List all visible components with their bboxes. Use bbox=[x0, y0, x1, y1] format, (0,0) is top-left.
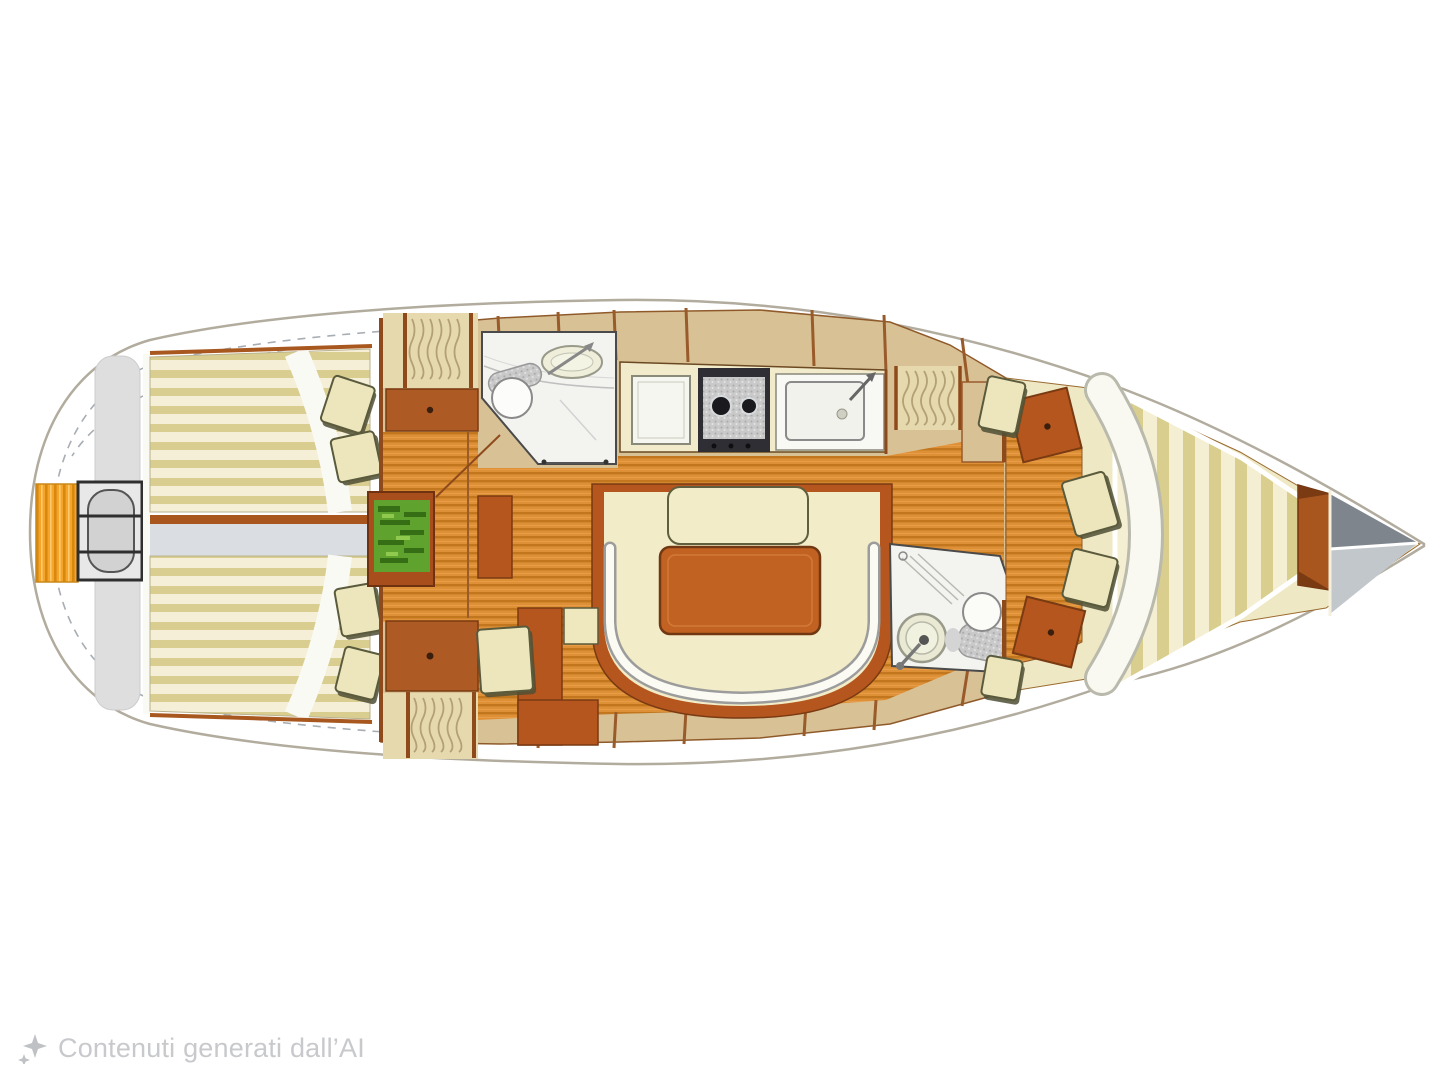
galley bbox=[620, 362, 886, 454]
icebox bbox=[632, 376, 690, 444]
galley-sink-icon bbox=[776, 372, 884, 450]
aft-cabin-port bbox=[383, 621, 478, 759]
steering-wheel-icon bbox=[88, 490, 134, 572]
bow-trim bbox=[1298, 485, 1330, 590]
transom-step bbox=[36, 484, 78, 582]
nav-seat bbox=[478, 496, 512, 578]
helm-station bbox=[78, 482, 142, 580]
cockpit-bench-port bbox=[150, 556, 372, 722]
salon-bench bbox=[668, 487, 808, 544]
anchor-locker bbox=[1330, 490, 1418, 616]
cockpit-moulding bbox=[143, 354, 150, 714]
salon-table bbox=[660, 547, 820, 634]
aft-cabin-starboard bbox=[383, 313, 478, 431]
yacht-floor-plan-image: Contenuti generati dall’AI bbox=[0, 0, 1440, 1080]
watermark-text: Contenuti generati dall’AI bbox=[58, 1033, 365, 1064]
ai-sparkle-icon bbox=[16, 1032, 48, 1064]
ai-watermark: Contenuti generati dall’AI bbox=[16, 1032, 365, 1064]
floor-plan-drawing bbox=[0, 0, 1440, 1080]
stove-icon bbox=[698, 368, 770, 452]
